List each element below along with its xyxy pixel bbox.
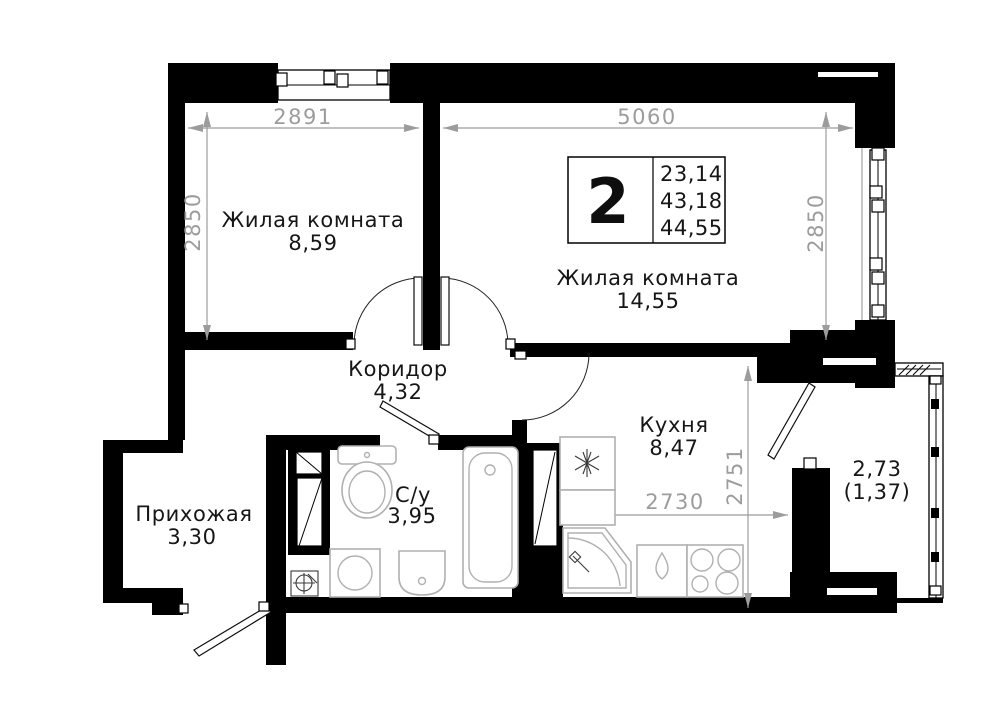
- floor-drain-icon: [291, 571, 318, 596]
- living1-area: 8,59: [288, 231, 337, 255]
- living1-name: Жилая комната: [222, 208, 405, 232]
- door-balcony-icon: [768, 383, 816, 469]
- stove-icon: [687, 545, 743, 597]
- window-right-icon: [862, 148, 886, 320]
- label-living1: Жилая комната 8,59: [222, 208, 405, 255]
- dim-5060: 5060: [617, 105, 676, 129]
- shaft-kitchen-side-icon: [533, 450, 557, 546]
- dim-2850-left: 2850: [181, 192, 205, 251]
- walls: [103, 63, 943, 665]
- hallway-name: Прихожая: [135, 502, 252, 526]
- ventilation-shaft-icon: [288, 443, 330, 555]
- hallway-area: 3,30: [167, 525, 216, 549]
- dimension-left: 2850: [181, 112, 211, 340]
- living2-area: 14,55: [616, 289, 679, 313]
- window-top-icon: [276, 70, 390, 100]
- area-main: 43,18: [660, 189, 723, 213]
- dim-2891: 2891: [273, 105, 332, 129]
- floor-plan: 2891 5060 2850 2850 2751: [0, 0, 1000, 707]
- corridor-area: 4,32: [373, 380, 422, 404]
- door-bathroom-icon: [380, 401, 439, 444]
- kitchen-name: Кухня: [639, 413, 708, 437]
- refrigerator-icon: [560, 437, 615, 525]
- corridor-name: Коридор: [348, 357, 448, 381]
- washing-machine-icon: [330, 549, 380, 597]
- dimension-top-left: 2891: [188, 105, 419, 132]
- dimension-top-right: 5060: [443, 105, 853, 132]
- bathroom-area: 3,95: [387, 504, 436, 528]
- dim-2730: 2730: [645, 490, 704, 514]
- balcony-area-reduced: (1,37): [844, 480, 911, 504]
- label-balcony: 2,73 (1,37): [844, 457, 911, 504]
- unit-info-box: 2 23,14 43,18 44,55: [568, 157, 725, 243]
- label-hallway: Прихожая 3,30: [135, 502, 252, 549]
- washbasin-icon: [399, 551, 445, 595]
- label-kitchen: Кухня 8,47: [639, 413, 708, 460]
- kitchen-fixtures: [560, 437, 743, 597]
- dim-2850-right: 2850: [804, 193, 828, 252]
- rooms-count: 2: [586, 165, 629, 238]
- area-living: 23,14: [660, 162, 723, 186]
- door-living1-icon: [346, 277, 422, 349]
- kitchen-area: 8,47: [649, 436, 698, 460]
- door-living2-icon: [441, 277, 515, 349]
- door-kitchen-icon: [515, 351, 589, 420]
- kitchen-sink-icon: [637, 545, 687, 597]
- living2-name: Жилая комната: [557, 266, 740, 290]
- bathtub-icon: [463, 447, 518, 588]
- label-corridor: Коридор 4,32: [348, 357, 448, 404]
- dimension-right: 2850: [804, 112, 830, 340]
- label-living2: Жилая комната 14,55: [557, 266, 740, 313]
- dim-2751: 2751: [723, 446, 747, 505]
- door-entrance-icon: [179, 602, 271, 656]
- label-bathroom: С/у 3,95: [387, 483, 436, 528]
- balcony-area: 2,73: [852, 457, 901, 481]
- corner-sink-icon: [563, 528, 631, 593]
- area-total: 44,55: [660, 216, 723, 240]
- floor-plan-page: 2891 5060 2850 2850 2751: [0, 0, 1000, 707]
